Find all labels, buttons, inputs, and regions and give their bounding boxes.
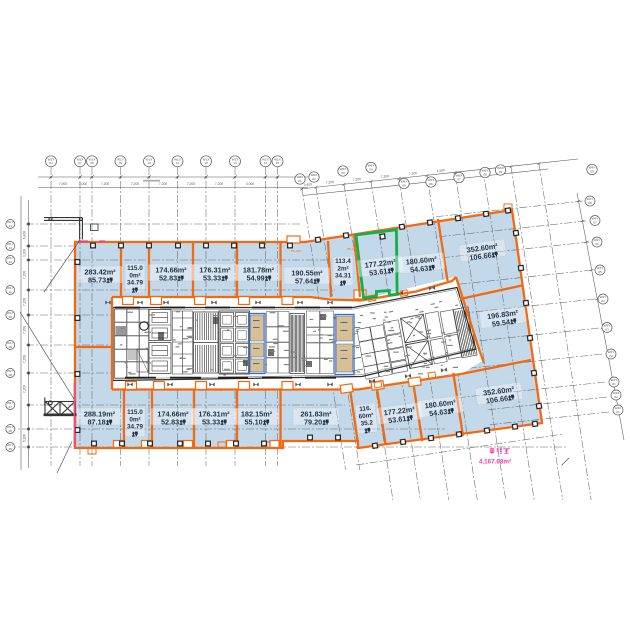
svg-text:06: 06 — [429, 182, 433, 186]
svg-text:52.83: 52.83 — [161, 418, 179, 427]
svg-text:53.33: 53.33 — [202, 418, 220, 427]
svg-text:03: 03 — [341, 171, 345, 175]
svg-text:35.2: 35.2 — [360, 419, 374, 427]
svg-text:12: 12 — [204, 161, 208, 165]
svg-text:79.20: 79.20 — [304, 418, 322, 427]
svg-text:115.0: 115.0 — [127, 409, 143, 416]
svg-text:13: 13 — [9, 246, 13, 250]
svg-text:10: 10 — [147, 161, 151, 165]
svg-text:0m²: 0m² — [129, 416, 140, 423]
svg-text:15: 15 — [276, 161, 280, 165]
svg-text:11: 11 — [9, 290, 12, 294]
svg-text:09: 09 — [119, 161, 123, 165]
svg-text:113.4: 113.4 — [335, 258, 351, 265]
svg-text:01: 01 — [616, 410, 620, 414]
svg-text:P5-403: P5-403 — [135, 295, 145, 299]
svg-text:7,200: 7,200 — [23, 298, 27, 306]
svg-text:05: 05 — [402, 183, 406, 187]
svg-text:P5-403: P5-403 — [125, 388, 135, 392]
svg-text:02: 02 — [609, 354, 613, 358]
svg-text:05: 05 — [598, 270, 602, 274]
svg-text:P5-403: P5-403 — [181, 295, 191, 299]
svg-text:08: 08 — [588, 201, 592, 205]
svg-text:53.33: 53.33 — [203, 274, 221, 283]
svg-text:09: 09 — [590, 169, 594, 173]
svg-text:P5-403: P5-403 — [347, 247, 357, 251]
svg-text:52.83: 52.83 — [159, 274, 177, 283]
svg-text:P5-403: P5-403 — [257, 388, 267, 392]
svg-text:07: 07 — [593, 220, 597, 224]
svg-text:115.0: 115.0 — [127, 265, 143, 272]
svg-text:34.79: 34.79 — [127, 280, 143, 287]
svg-text:08: 08 — [9, 373, 13, 377]
svg-text:P5-403: P5-403 — [169, 388, 179, 392]
svg-text:34.79: 34.79 — [127, 424, 143, 431]
svg-text:6,400: 6,400 — [23, 231, 27, 239]
svg-text:7,000: 7,000 — [59, 182, 67, 186]
svg-text:55.10: 55.10 — [244, 418, 262, 427]
svg-text:13: 13 — [233, 161, 237, 165]
svg-text:57.64: 57.64 — [295, 277, 314, 286]
svg-text:11: 11 — [176, 161, 179, 165]
svg-text:14: 14 — [264, 161, 268, 165]
svg-text:01: 01 — [298, 179, 302, 183]
svg-text:3,000: 3,000 — [246, 182, 254, 186]
svg-text:7,200: 7,200 — [23, 355, 27, 363]
svg-text:85.73: 85.73 — [88, 276, 106, 285]
svg-text:7,200: 7,200 — [131, 182, 139, 186]
svg-text:04: 04 — [49, 161, 53, 165]
svg-text:4,167.68m²: 4,167.68m² — [479, 459, 511, 466]
svg-text:87.18: 87.18 — [87, 418, 105, 427]
svg-text:05: 05 — [9, 447, 13, 451]
svg-text:34.31: 34.31 — [335, 273, 351, 280]
svg-text:7,200: 7,200 — [23, 385, 27, 393]
svg-text:3,000: 3,000 — [79, 182, 87, 186]
svg-text:02: 02 — [614, 395, 618, 399]
svg-text:09: 09 — [499, 170, 503, 174]
svg-text:09: 09 — [9, 345, 13, 349]
svg-text:07: 07 — [9, 405, 13, 409]
svg-text:54.63: 54.63 — [410, 264, 429, 275]
svg-text:7,200: 7,200 — [187, 182, 195, 186]
svg-text:12: 12 — [9, 260, 13, 264]
svg-text:7,200: 7,200 — [23, 271, 27, 279]
svg-text:7,200: 7,200 — [215, 182, 223, 186]
svg-text:06: 06 — [595, 242, 599, 246]
svg-text:07: 07 — [457, 177, 461, 181]
svg-text:02: 02 — [312, 177, 316, 181]
svg-text:P5-403: P5-403 — [271, 295, 281, 299]
svg-text:3,300: 3,300 — [23, 249, 27, 257]
svg-text:P5-403: P5-403 — [291, 249, 301, 253]
svg-text:07: 07 — [78, 161, 82, 165]
svg-text:0m²: 0m² — [129, 272, 140, 279]
svg-text:03: 03 — [605, 327, 609, 331]
svg-text:P5-403: P5-403 — [227, 295, 237, 299]
svg-text:08: 08 — [483, 172, 487, 176]
svg-text:08: 08 — [90, 161, 94, 165]
svg-text:10: 10 — [9, 315, 13, 319]
svg-text:2m²: 2m² — [337, 265, 348, 272]
svg-text:01: 01 — [612, 382, 616, 386]
svg-text:54.99: 54.99 — [246, 274, 264, 283]
svg-text:04: 04 — [601, 299, 605, 303]
svg-text:7,200: 7,200 — [23, 326, 27, 334]
svg-text:7,200: 7,200 — [159, 182, 167, 186]
svg-text:04: 04 — [369, 167, 373, 171]
svg-text:7,200: 7,200 — [101, 182, 109, 186]
svg-text:06: 06 — [9, 429, 13, 433]
svg-text:P5-403: P5-403 — [213, 388, 223, 392]
svg-text:14: 14 — [9, 224, 13, 228]
svg-text:5,900: 5,900 — [23, 434, 27, 442]
